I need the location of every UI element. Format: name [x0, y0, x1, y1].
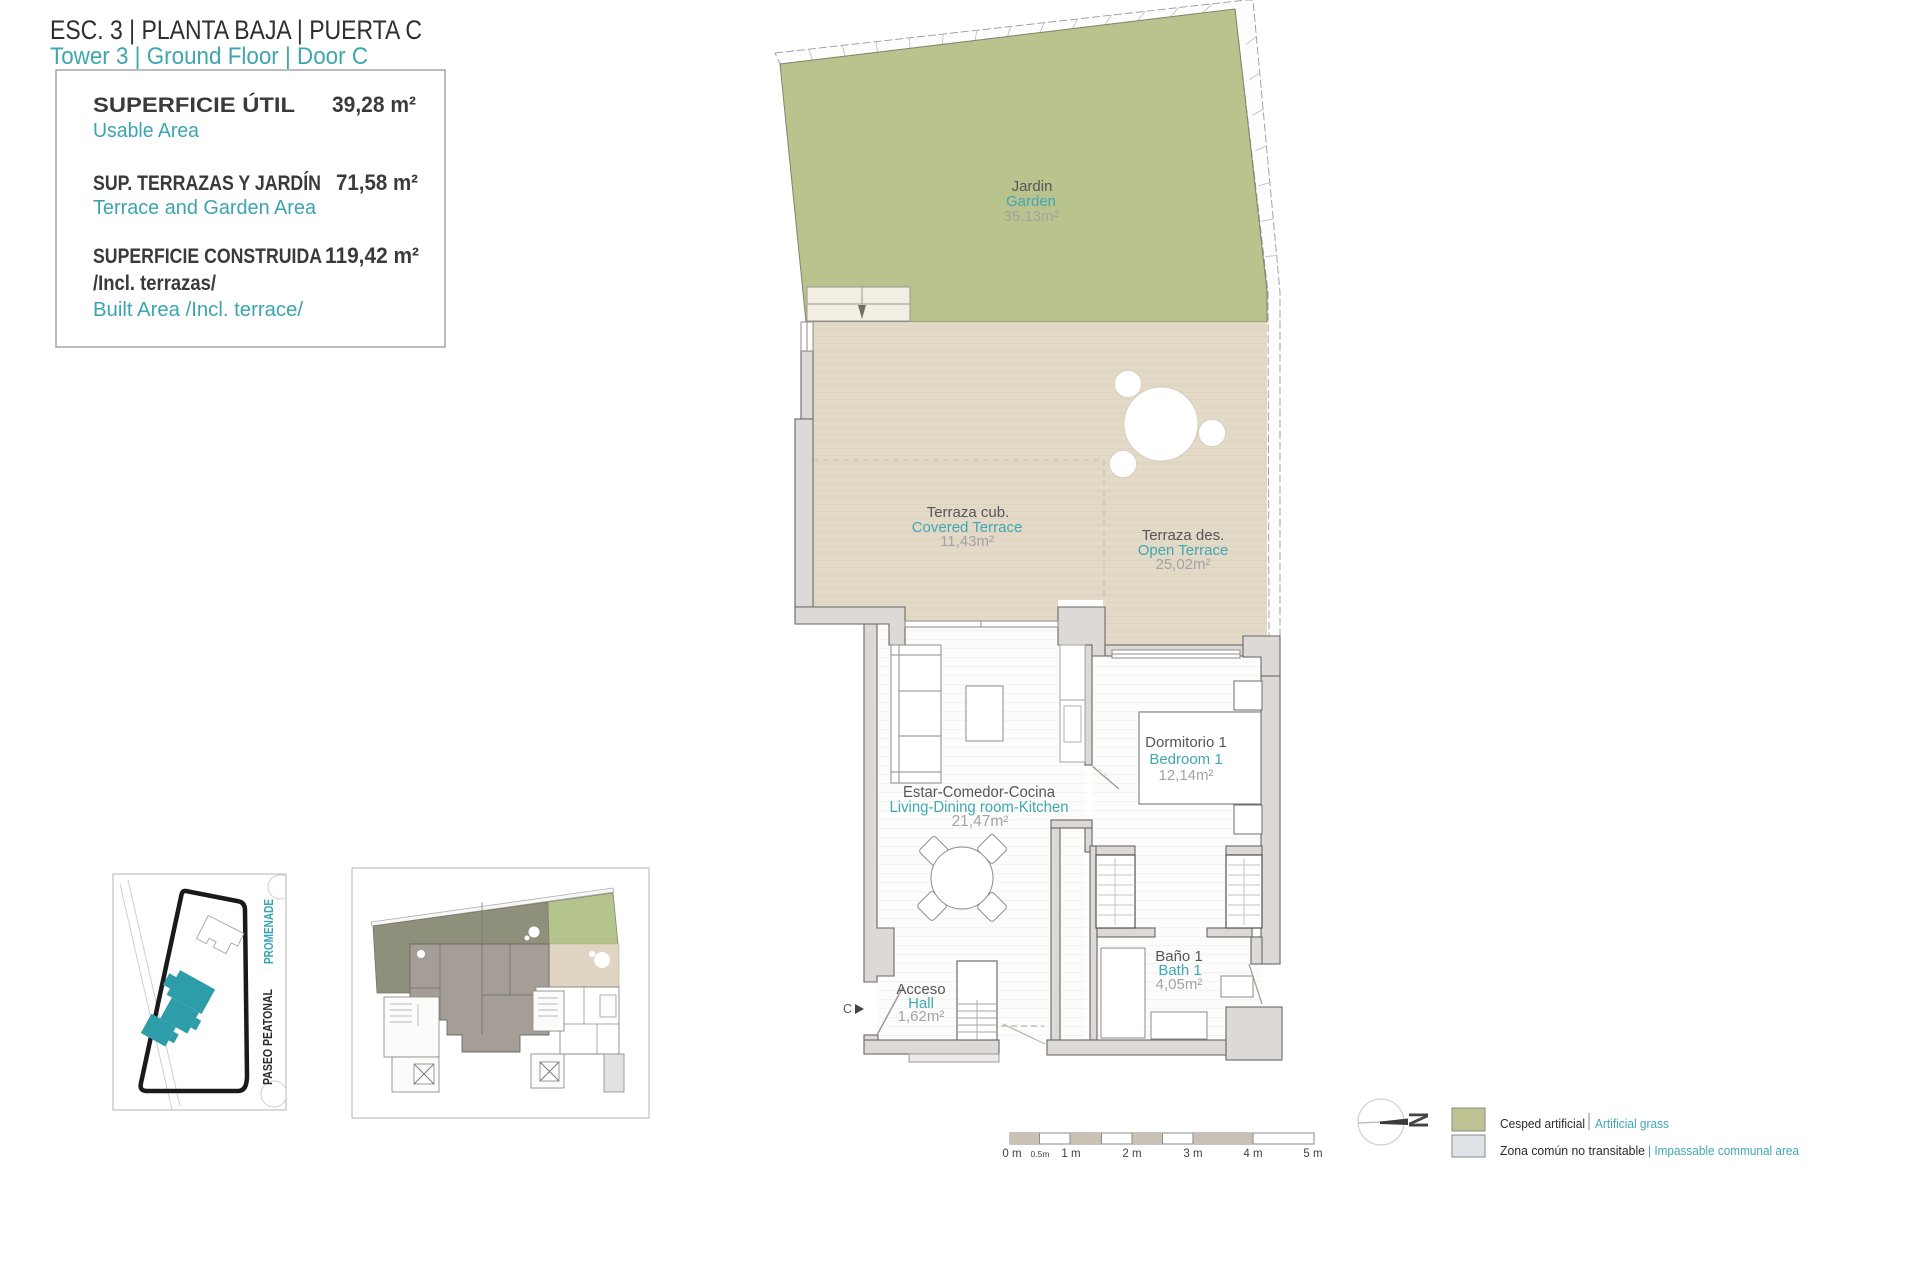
svg-text:11,43m²: 11,43m²	[940, 533, 994, 550]
svg-text:119,42 m²: 119,42 m²	[325, 243, 419, 268]
svg-text:5 m: 5 m	[1303, 1148, 1322, 1160]
svg-text:C: C	[843, 1002, 852, 1016]
svg-text:Dormitorio 1: Dormitorio 1	[1145, 734, 1227, 751]
svg-text:3 m: 3 m	[1183, 1148, 1202, 1160]
svg-text:12,14m²: 12,14m²	[1158, 767, 1213, 784]
svg-text:4,05m²: 4,05m²	[1156, 976, 1203, 993]
svg-text:25,02m²: 25,02m²	[1155, 556, 1210, 573]
svg-text:35,13m²: 35,13m²	[1003, 208, 1058, 225]
svg-text:PASEO PEATONAL: PASEO PEATONAL	[260, 989, 275, 1085]
svg-text:0 m: 0 m	[1002, 1148, 1021, 1160]
svg-text:Cesped artificial: Cesped artificial	[1500, 1116, 1585, 1131]
svg-text:/Incl. terrazas/: /Incl. terrazas/	[93, 272, 216, 295]
svg-text:SUPERFICIE CONSTRUIDA: SUPERFICIE CONSTRUIDA	[93, 245, 322, 268]
svg-text:Zona común no transitable: Zona común no transitable	[1500, 1143, 1645, 1158]
svg-text:Bedroom 1: Bedroom 1	[1149, 751, 1222, 768]
svg-text:1 m: 1 m	[1061, 1148, 1080, 1160]
svg-text:Terrace and Garden Area: Terrace and Garden Area	[93, 197, 317, 219]
svg-text:N: N	[1403, 1112, 1434, 1128]
svg-text:71,58 m²: 71,58 m²	[336, 170, 418, 195]
svg-text:0.5m: 0.5m	[1031, 1149, 1050, 1159]
svg-text:PROMENADE: PROMENADE	[261, 899, 276, 964]
svg-text:| Impassable communal area: | Impassable communal area	[1648, 1143, 1800, 1158]
svg-text:Tower 3 | Ground Floor | Door: Tower 3 | Ground Floor | Door C	[50, 43, 368, 70]
svg-text:Usable Area: Usable Area	[93, 120, 200, 142]
svg-text:39,28 m²: 39,28 m²	[332, 92, 416, 117]
svg-text:Artificial grass: Artificial grass	[1595, 1116, 1669, 1131]
svg-text:1,62m²: 1,62m²	[898, 1008, 945, 1025]
svg-text:Built Area /Incl. terrace/: Built Area /Incl. terrace/	[93, 299, 303, 321]
svg-text:ESC. 3 | PLANTA BAJA | PUERTA: ESC. 3 | PLANTA BAJA | PUERTA C	[50, 15, 422, 45]
svg-text:SUPERFICIE ÚTIL: SUPERFICIE ÚTIL	[93, 93, 295, 117]
svg-text:4 m: 4 m	[1243, 1148, 1262, 1160]
svg-text:2 m: 2 m	[1122, 1148, 1141, 1160]
svg-text:21,47m²: 21,47m²	[952, 813, 1009, 830]
svg-text:SUP. TERRAZAS Y JARDÍN: SUP. TERRAZAS Y JARDÍN	[93, 172, 321, 195]
